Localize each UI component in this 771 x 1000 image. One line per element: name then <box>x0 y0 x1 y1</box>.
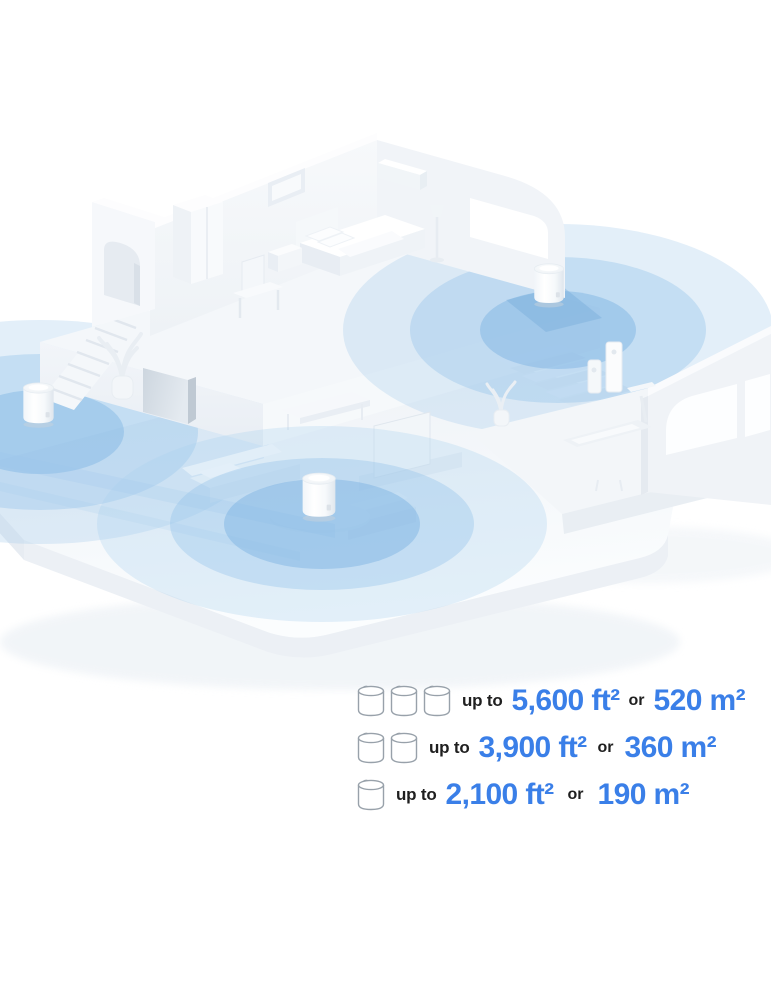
unit-icon-group <box>356 684 452 718</box>
coverage-conjunction: or <box>629 692 645 710</box>
coverage-legend: up to 5,600 ft² or 520 m² up to 3,900 ft… <box>356 684 745 812</box>
coverage-conjunction: or <box>598 739 614 757</box>
coverage-metric: 360 m² <box>625 731 716 765</box>
unit-icon-group <box>356 731 419 765</box>
coverage-imperial: 2,100 ft² <box>446 778 554 812</box>
coverage-imperial: 5,600 ft² <box>512 684 620 718</box>
deco-unit-icon <box>389 684 419 718</box>
coverage-prefix: up to <box>429 738 470 758</box>
house-coverage-illustration <box>0 0 771 1000</box>
deco-unit-icon <box>356 731 386 765</box>
coverage-row-3-units: up to 5,600 ft² or 520 m² <box>356 684 745 718</box>
coverage-metric: 520 m² <box>654 684 745 718</box>
deco-unit-icon <box>356 684 386 718</box>
coverage-conjunction: or <box>568 786 584 804</box>
deco-unit-upper <box>534 264 563 308</box>
side-window <box>745 374 770 437</box>
deco-unit-icon <box>422 684 452 718</box>
deco-unit-icon <box>356 778 386 812</box>
coverage-metric: 190 m² <box>598 778 689 812</box>
coverage-row-2-units: up to 3,900 ft² or 360 m² <box>356 731 745 765</box>
wardrobe <box>173 195 223 284</box>
coverage-row-1-unit: up to 2,100 ft² or 190 m² <box>356 778 745 812</box>
coverage-imperial: 3,900 ft² <box>479 731 587 765</box>
page: up to 5,600 ft² or 520 m² up to 3,900 ft… <box>0 0 771 1000</box>
coverage-prefix: up to <box>396 785 437 805</box>
deco-unit-left <box>23 383 53 428</box>
coverage-prefix: up to <box>462 691 503 711</box>
coverage-circles-living <box>97 426 547 622</box>
deco-unit-living <box>303 473 336 522</box>
unit-icon-group <box>356 778 386 812</box>
deco-unit-icon <box>389 731 419 765</box>
